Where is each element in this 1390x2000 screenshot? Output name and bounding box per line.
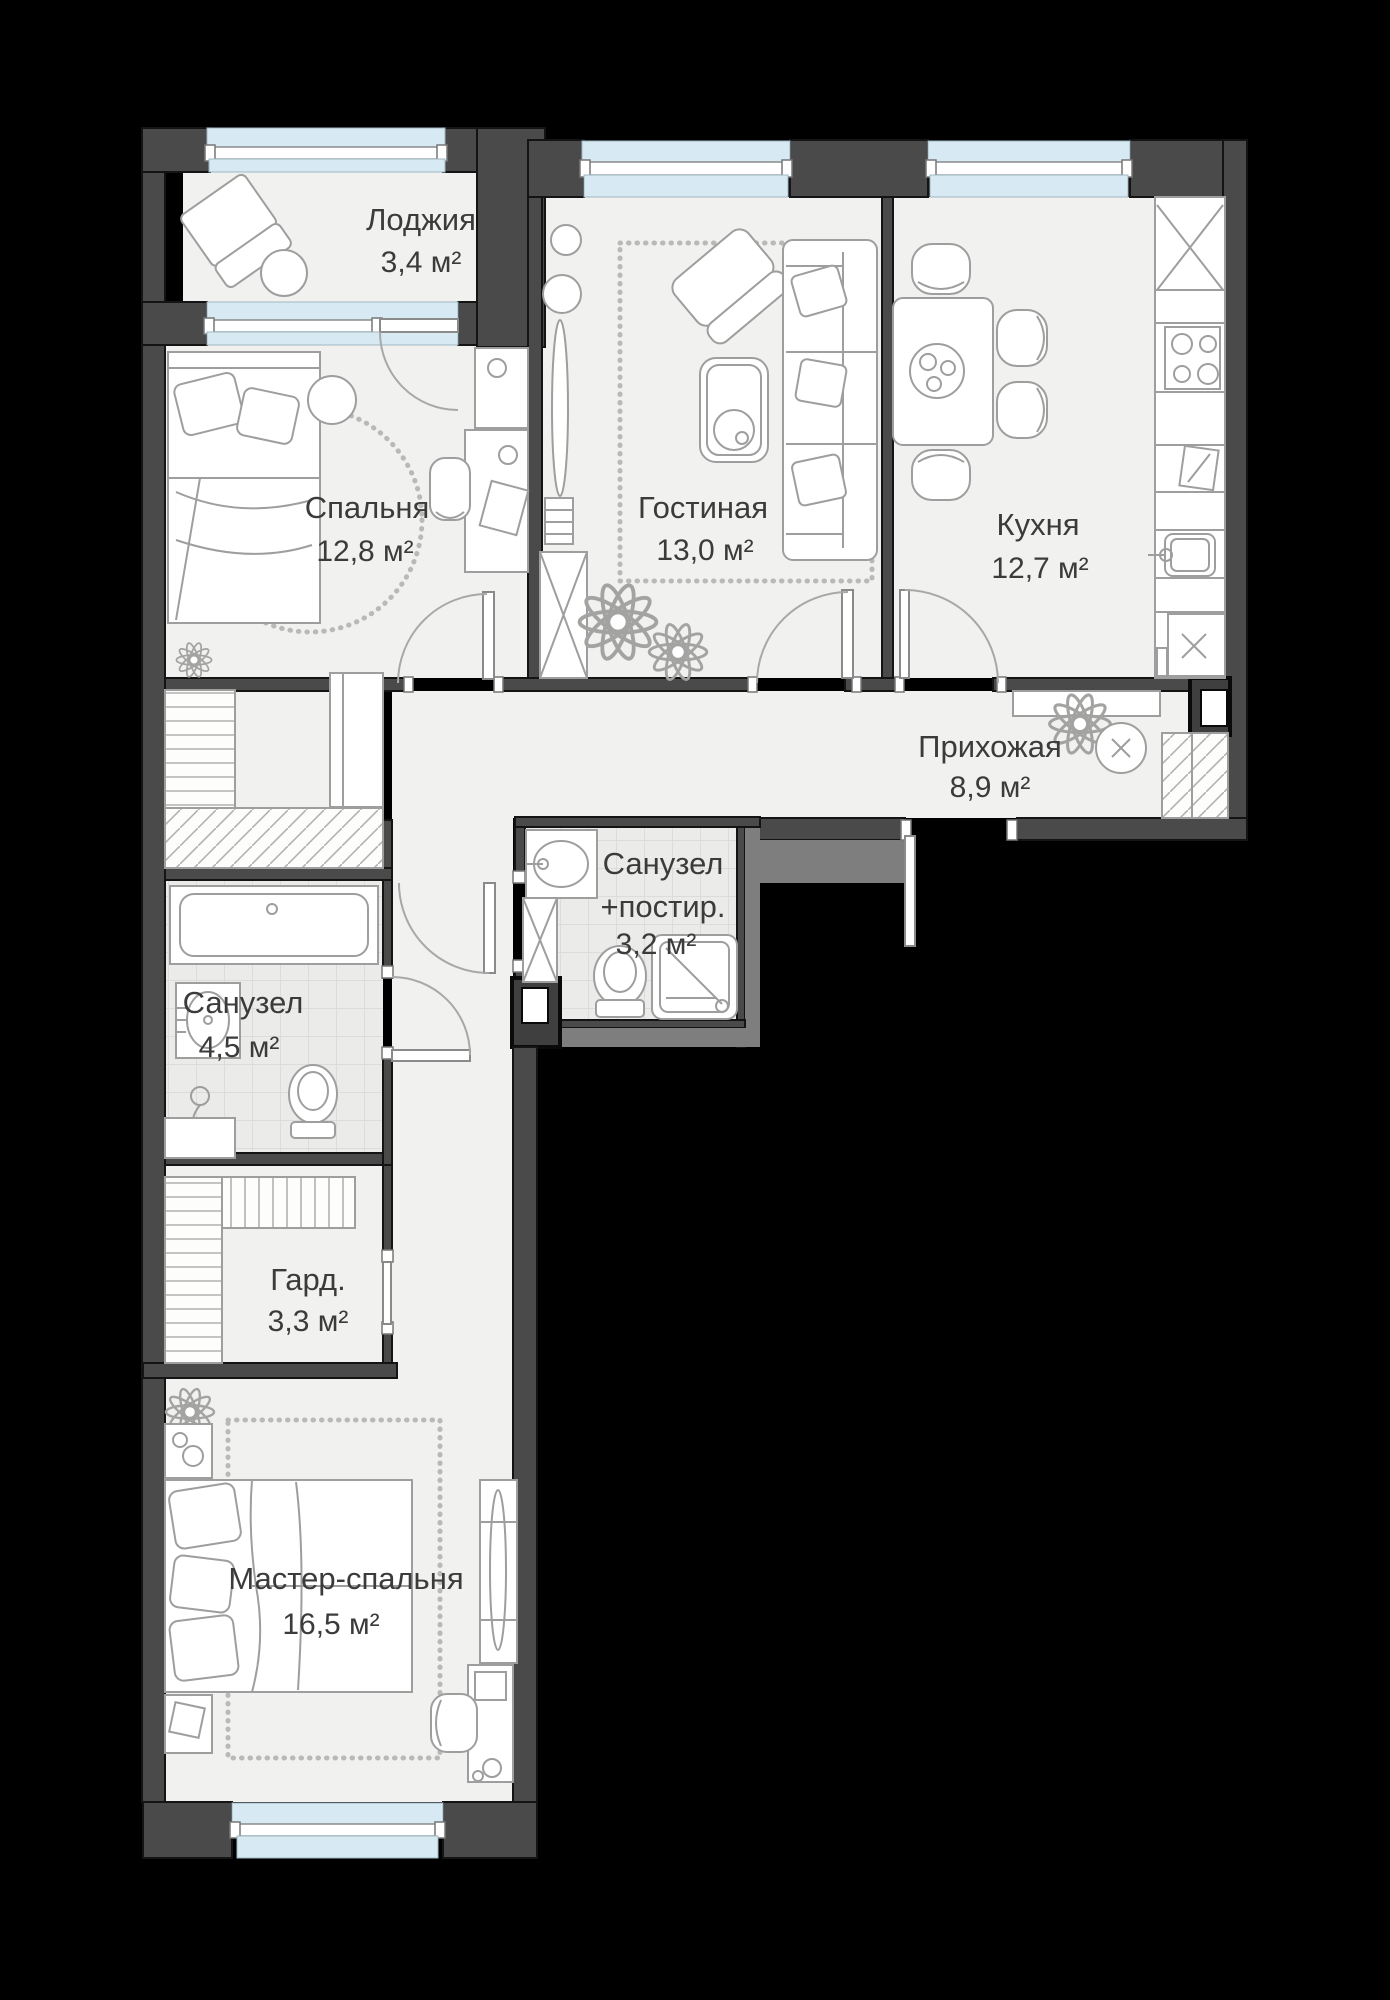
closet-shelves-icon — [165, 690, 235, 808]
wall-master-south-left-pier — [143, 1802, 232, 1858]
master-bedroom-window — [230, 1803, 445, 1858]
dining-table-icon — [893, 298, 993, 445]
wall-master-south-right-pier — [443, 1802, 537, 1858]
dining-chair-top-icon — [912, 244, 970, 294]
room-area-loggia: 3,4 м² — [381, 246, 462, 279]
vestibule-shaft-inset — [522, 988, 548, 1023]
room-label-kitchen: Кухня — [997, 507, 1080, 542]
wall-bath-laundry-east-line — [737, 823, 745, 1047]
wardrobe-rack-icon — [222, 1177, 355, 1228]
bedroom-dresser-icon — [475, 348, 528, 428]
laundry-cabinet-icon — [523, 898, 557, 982]
hall-pouf-icon — [1096, 723, 1146, 773]
dining-chair-right1-icon — [997, 310, 1047, 366]
wall-bath-laundry-east-band — [745, 823, 760, 1047]
dining-chair-bottom-icon — [912, 450, 970, 500]
wall-bathroom-east-upper — [383, 820, 392, 978]
room-area-bathroom-laundry: 3,2 м² — [616, 928, 697, 961]
room-label-hallway: Прихожая — [918, 729, 1062, 764]
kitchen-counter-icon — [1148, 197, 1225, 678]
wall-hall-south-a — [743, 818, 905, 840]
master-nightstand-top-icon — [165, 1424, 212, 1478]
wall-west-spine — [142, 128, 165, 1802]
wall-bedroom-window-left-pier — [142, 302, 207, 345]
bathroom-toilet-icon — [289, 1065, 337, 1138]
room-label-wardrobe: Гард. — [270, 1262, 346, 1297]
room-label-loggia: Лоджия — [366, 202, 476, 237]
wardrobe-shelves-icon — [165, 1177, 222, 1363]
room-area-bathroom: 4,5 м² — [199, 1031, 280, 1064]
wall-bath-laundry-top — [515, 817, 760, 827]
bedroom-desk-icon — [465, 430, 528, 572]
entrance-door — [901, 820, 1017, 946]
wall-loggia-top-right — [443, 128, 479, 172]
wall-bathroom-east-lower — [383, 1053, 392, 1165]
wall-hall-south-b — [1017, 818, 1247, 840]
coffee-table-icon — [700, 358, 768, 462]
laundry-sink-icon — [526, 830, 597, 898]
loggia-top-window — [205, 128, 447, 172]
kitchen-shaft-inset — [1201, 690, 1227, 726]
floor-plan: Лоджия 3,4 м² Спальня 12,8 м² Гостиная 1… — [0, 0, 1390, 2000]
wall-closet-bathroom-divider — [165, 868, 392, 880]
wall-bedroom-window-right-pier — [458, 302, 477, 345]
wardrobe-door — [382, 1250, 393, 1334]
wall-wardrobe-east-upper — [383, 1165, 392, 1258]
room-area-bedroom: 12,8 м² — [316, 535, 413, 568]
master-nightstand-bottom-icon — [165, 1695, 212, 1753]
room-area-living: 13,0 м² — [656, 534, 753, 567]
bedroom-chair-icon — [430, 458, 470, 520]
wall-top-mid-pier — [790, 140, 928, 197]
floor-plan-svg: Лоджия 3,4 м² Спальня 12,8 м² Гостиная 1… — [0, 0, 1390, 2000]
loggia-door-leaf — [380, 319, 458, 332]
room-label-bathroom-laundry: Санузел — [603, 846, 724, 881]
closet-wardrobe-icon — [165, 808, 383, 868]
kitchen-window — [926, 141, 1132, 197]
room-area-wardrobe: 3,3 м² — [268, 1305, 349, 1338]
single-bed-icon — [168, 352, 320, 623]
master-chair-icon — [431, 1694, 477, 1752]
room-area-hallway: 8,9 м² — [950, 771, 1031, 804]
room-area-kitchen: 12,7 м² — [991, 552, 1088, 585]
dining-chair-right2-icon — [997, 382, 1047, 438]
living-window — [580, 141, 792, 197]
wall-hall-south-band — [743, 840, 905, 883]
room-label-bathroom-laundry-2: +постир. — [601, 889, 726, 924]
wall-wardrobe-east-lower — [383, 1330, 392, 1363]
wall-wardrobe-master-divider — [143, 1363, 397, 1378]
wall-living-kitchen-divider — [882, 197, 893, 691]
room-label-living: Гостиная — [638, 490, 768, 525]
room-label-bedroom: Спальня — [305, 490, 430, 525]
room-label-bathroom: Санузел — [183, 985, 304, 1020]
loggia-table-icon — [261, 250, 307, 296]
corridor-floor — [392, 691, 513, 1378]
bedside-table-icon — [308, 376, 356, 424]
wall-south-upper-b — [497, 678, 755, 691]
wall-lower-east-spine — [513, 1047, 537, 1802]
hall-wardrobe-icon — [1162, 733, 1228, 818]
bathroom-cabinet-icon — [165, 1118, 235, 1158]
wall-loggia-top-left — [142, 128, 210, 172]
closet-cabinet-icon — [330, 673, 383, 807]
wall-south-upper-d — [993, 678, 1190, 691]
room-label-master: Мастер-спальня — [228, 1561, 463, 1596]
bathtub-icon — [170, 886, 378, 964]
master-shelving-icon — [480, 1480, 517, 1663]
sofa-icon — [783, 240, 877, 560]
wall-living-top-left-pier — [528, 140, 584, 197]
room-area-master: 16,5 м² — [282, 1608, 379, 1641]
